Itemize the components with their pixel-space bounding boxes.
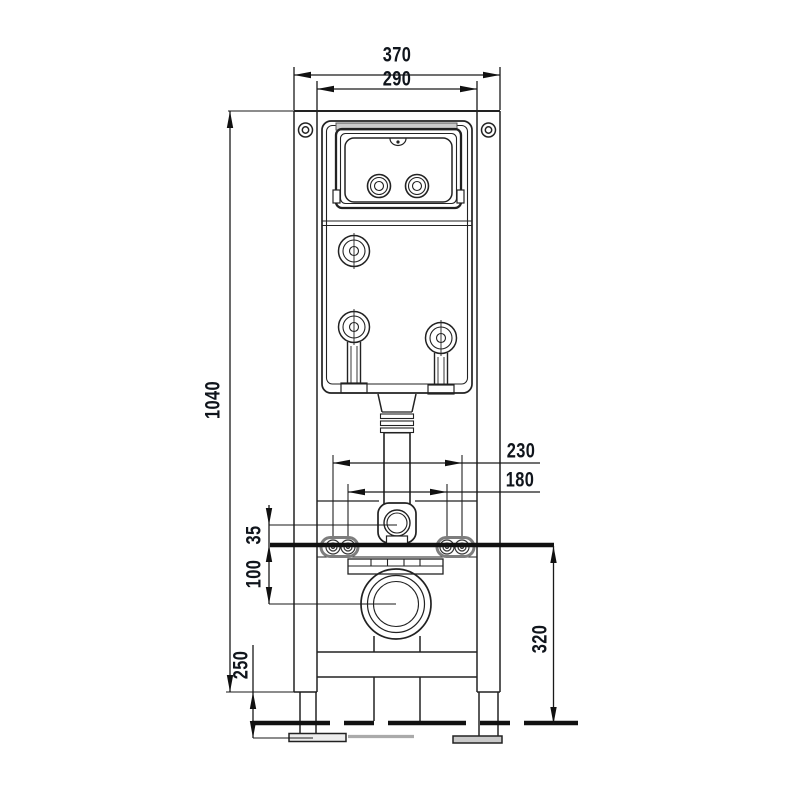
dim-label-1040: 1040 bbox=[203, 381, 224, 419]
frame-outline bbox=[294, 111, 500, 692]
dim-label-180: 180 bbox=[506, 470, 535, 491]
dim-label-290: 290 bbox=[383, 69, 412, 90]
dim-label-35: 35 bbox=[244, 525, 265, 544]
panel-clip-left bbox=[333, 190, 340, 203]
access-panel bbox=[333, 129, 464, 208]
dim-label-230: 230 bbox=[507, 441, 536, 462]
waste-outlet bbox=[361, 569, 431, 721]
drawing-linework bbox=[0, 0, 800, 800]
dim-label-100: 100 bbox=[244, 560, 265, 589]
dimension-lines bbox=[226, 67, 557, 738]
dim-label-320: 320 bbox=[530, 625, 551, 654]
outlet-bracket bbox=[348, 559, 443, 574]
dim-label-370: 370 bbox=[383, 45, 412, 66]
dim-1040 bbox=[226, 111, 317, 692]
flush-pipe bbox=[378, 394, 416, 504]
tank-fittings bbox=[339, 233, 457, 394]
dim-label-250: 250 bbox=[231, 651, 252, 680]
panel-clip-right bbox=[457, 190, 464, 203]
flush-elbow bbox=[378, 503, 416, 544]
support-feet bbox=[289, 692, 502, 743]
flush-buttons bbox=[368, 175, 429, 198]
foot-plate-right bbox=[453, 736, 502, 743]
technical-drawing: 370 290 1040 230 180 35 100 250 320 bbox=[0, 0, 800, 800]
